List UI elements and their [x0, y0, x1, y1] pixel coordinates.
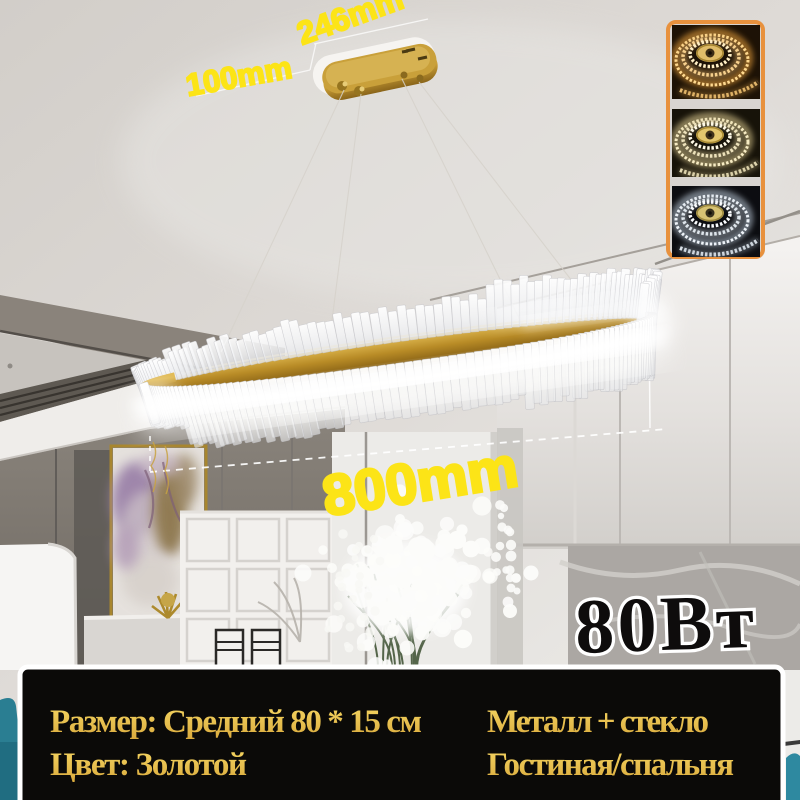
svg-text:Цвет: Золотой: Цвет: Золотой — [50, 747, 247, 783]
svg-text:Металл + стекло: Металл + стекло — [487, 704, 709, 740]
svg-text:Размер: Средний 80 * 15 см: Размер: Средний 80 * 15 см — [50, 704, 422, 740]
svg-text:Гостиная/спальня: Гостиная/спальня — [487, 747, 734, 783]
svg-text:80Вт: 80Вт — [574, 577, 759, 670]
